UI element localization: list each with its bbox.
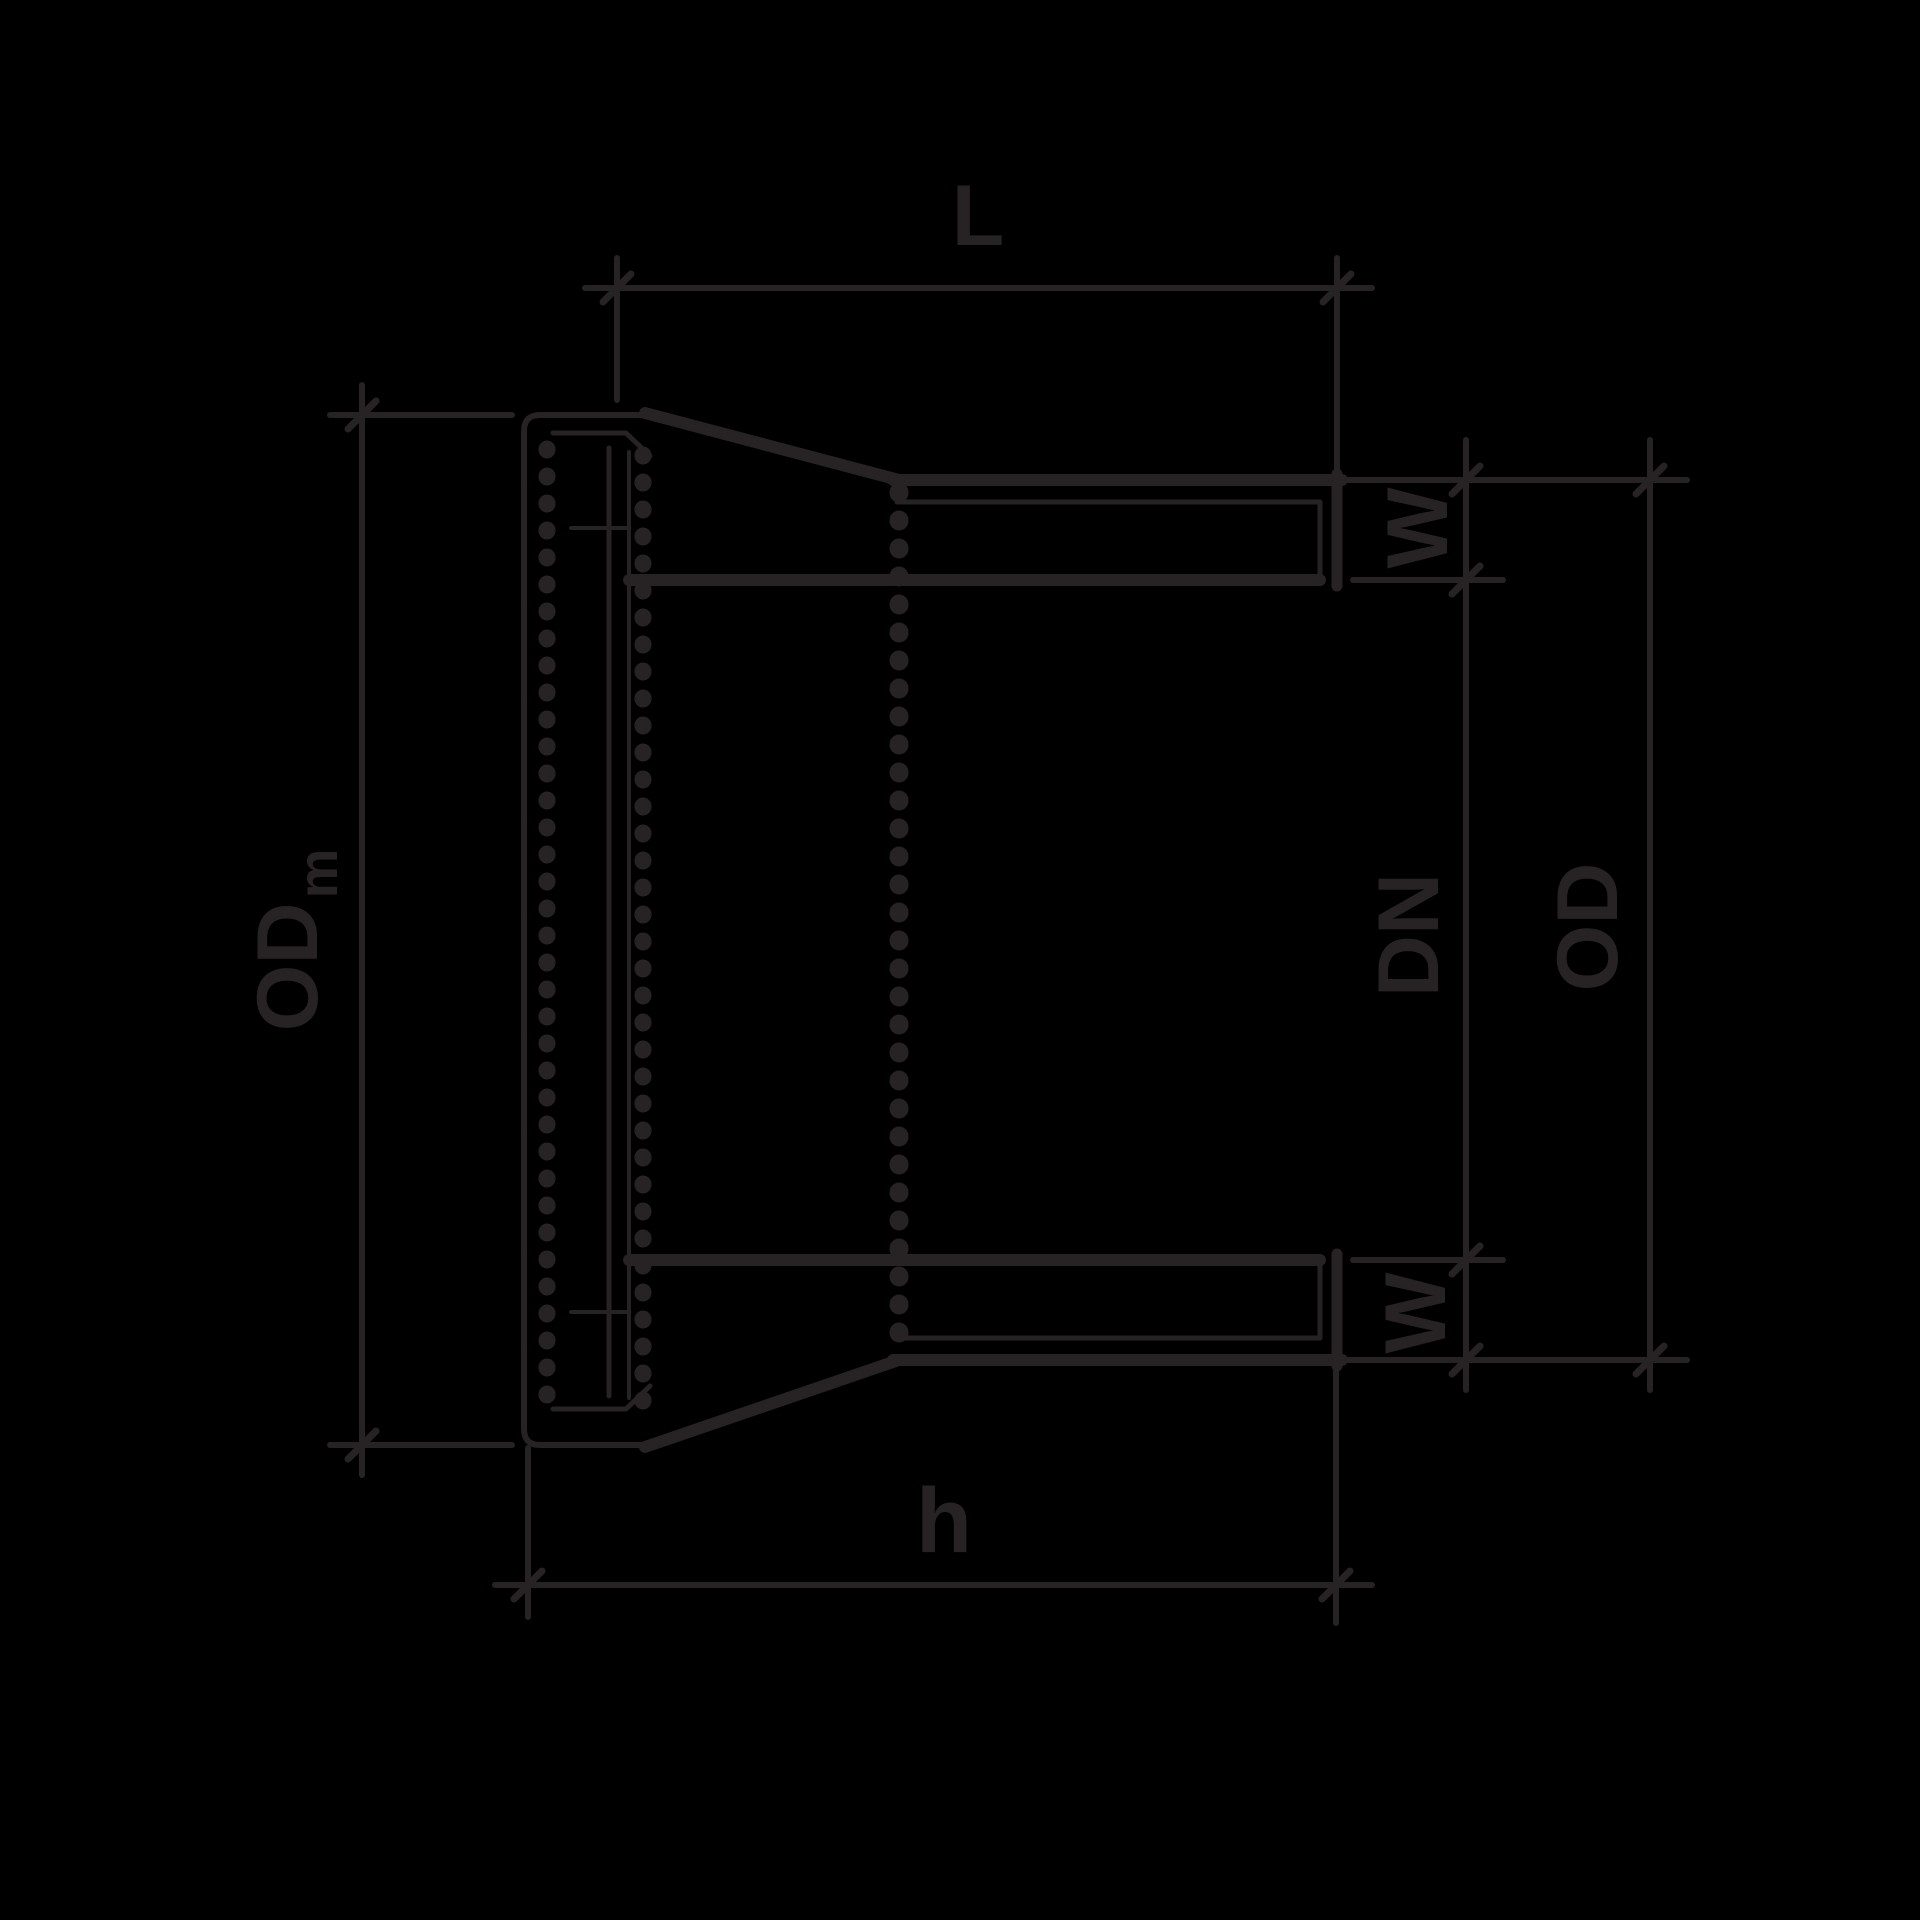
dim-label-ODm-main: OD [240,902,336,1031]
reducer-cone [645,413,899,1447]
dim-label-W-top: W [1370,487,1466,569]
cone-slant-top [645,413,899,480]
dim-label-OD: OD [1540,863,1636,992]
pipe-body [629,474,1342,1366]
dim-label-ODm-subscript: m [286,849,349,899]
dimension-W-bottom: W [1348,1246,1687,1374]
socket-bell [524,415,650,1445]
dim-label-W-bottom: W [1368,1272,1464,1354]
dim-label-ODm: ODm [240,849,349,1032]
dim-label-h: h [916,1470,972,1572]
cone-slant-bottom [645,1360,899,1447]
pipe-adapter-drawing: L ODm W DN W OD [0,0,1920,1920]
dimension-DN: DN [1361,873,1457,997]
dim-label-DN: DN [1361,873,1457,997]
dimension-OD: OD [1540,440,1664,1390]
dimension-ODm: ODm [240,385,512,1475]
technical-drawing-page: L ODm W DN W OD [0,0,1920,1920]
dim-label-L: L [952,168,1005,264]
